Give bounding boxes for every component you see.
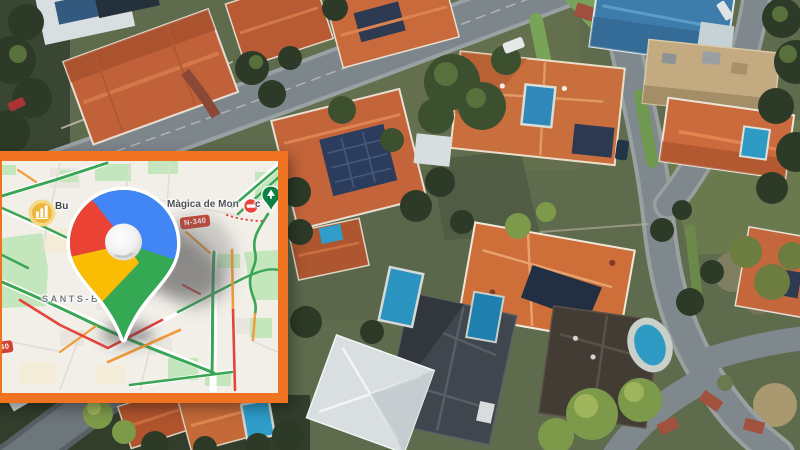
inset-map: Bu Màgica de Mon c SANTS-B N-340 N-340: [2, 161, 278, 393]
place-label-suffix: c: [255, 199, 261, 210]
poi-label: Bu: [55, 201, 68, 212]
district-label: SANTS-B: [42, 294, 100, 304]
place-label: Màgica de Mon: [167, 199, 239, 210]
busy-area-icon: [29, 200, 56, 227]
map-tiles: [2, 161, 278, 393]
promo-graphic: Bu Màgica de Mon c SANTS-B N-340 N-340: [0, 0, 800, 450]
inset-map-frame: Bu Màgica de Mon c SANTS-B N-340 N-340: [0, 151, 288, 403]
